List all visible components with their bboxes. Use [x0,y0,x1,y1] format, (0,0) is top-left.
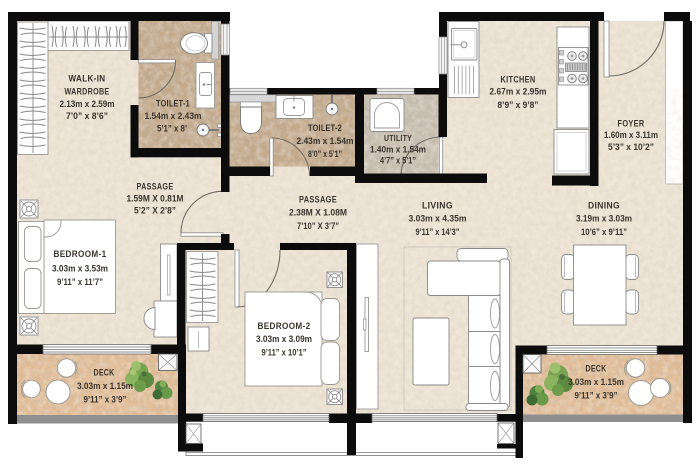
svg-text:3.03m x 1.15m: 3.03m x 1.15m [77,381,133,391]
svg-text:7’0” x 8’6”: 7’0” x 8’6” [66,111,108,121]
svg-text:KITCHEN: KITCHEN [501,74,536,85]
svg-text:1.40m x 1.54m: 1.40m x 1.54m [370,145,426,155]
svg-text:2.43m x 1.54m: 2.43m x 1.54m [297,136,354,146]
svg-text:5’3” x 10’2”: 5’3” x 10’2” [608,142,654,152]
svg-text:LIVING: LIVING [422,200,453,211]
svg-text:TOILET-1: TOILET-1 [156,98,190,109]
svg-text:WALK-IN: WALK-IN [69,73,106,84]
svg-text:7’10” X 3’7”: 7’10” X 3’7” [297,221,339,231]
svg-text:9’11” x 10’1”: 9’11” x 10’1” [262,348,307,358]
svg-text:3.19m x 3.03m: 3.19m x 3.03m [576,214,632,224]
svg-text:8’0” x 5’1”: 8’0” x 5’1” [308,149,342,159]
svg-text:3.03m x 3.53m: 3.03m x 3.53m [52,264,108,274]
svg-text:10’6” x 9’11”: 10’6” x 9’11” [581,227,627,237]
svg-text:1.54m x 2.43m: 1.54m x 2.43m [145,111,202,121]
svg-text:5’1” x 8’: 5’1” x 8’ [157,124,187,134]
svg-text:3.03m x 4.35m: 3.03m x 4.35m [409,214,467,224]
svg-text:9’11” x 14’3”: 9’11” x 14’3” [416,227,460,237]
svg-text:2.38M X 1.08M: 2.38M X 1.08M [289,208,347,218]
svg-text:DECK: DECK [586,363,607,374]
svg-text:DECK: DECK [94,367,115,378]
svg-text:5’2” X 2’8”: 5’2” X 2’8” [134,206,176,216]
svg-text:2.13m x 2.59m: 2.13m x 2.59m [60,99,115,109]
svg-text:FOYER: FOYER [618,118,645,129]
svg-text:PASSAGE: PASSAGE [299,194,337,205]
svg-text:1.60m x 3.11m: 1.60m x 3.11m [604,130,658,140]
svg-text:BEDROOM-1: BEDROOM-1 [54,249,107,260]
svg-text:TOILET-2: TOILET-2 [308,123,342,134]
svg-text:UTILITY: UTILITY [384,134,412,143]
svg-text:2.67m x 2.95m: 2.67m x 2.95m [490,87,547,97]
svg-text:9’11” x 3’9”: 9’11” x 3’9” [575,391,618,401]
svg-text:9’11” x 3’9”: 9’11” x 3’9” [84,395,127,405]
svg-text:4’7” x 5’1”: 4’7” x 5’1” [380,156,416,166]
svg-text:DINING: DINING [588,200,620,211]
svg-text:3.03m x 1.15m: 3.03m x 1.15m [568,377,624,387]
svg-text:9’11” x 11’7”: 9’11” x 11’7” [57,277,103,287]
svg-text:BEDROOM-2: BEDROOM-2 [258,321,311,332]
svg-text:PASSAGE: PASSAGE [137,181,174,192]
svg-text:1.59M X 0.81M: 1.59M X 0.81M [127,194,184,204]
svg-text:WARDROBE: WARDROBE [65,86,110,97]
svg-text:3.03m x 3.09m: 3.03m x 3.09m [256,334,312,344]
svg-text:8’9” x 9’8”: 8’9” x 9’8” [498,100,539,110]
